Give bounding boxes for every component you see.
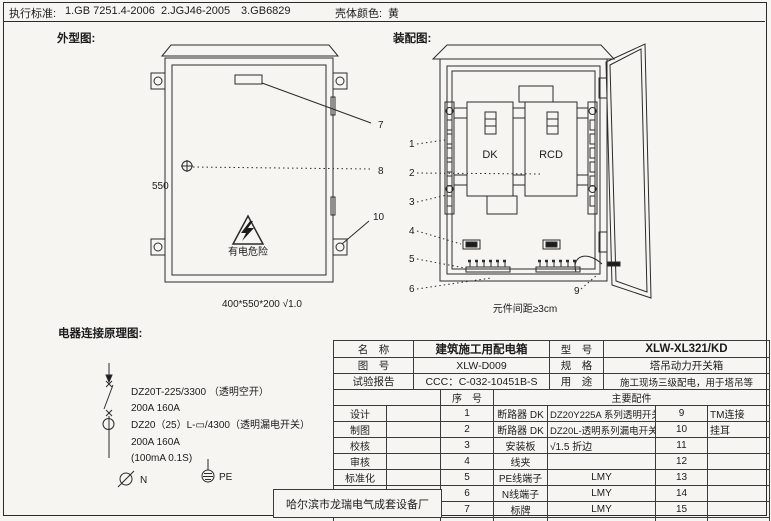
part-name: PE线端子: [494, 470, 548, 486]
schematic-line: DZ20（25）L-▭/4300（透明漏电开关）: [131, 418, 310, 431]
standard-item: 1.GB 7251.4-2006: [65, 5, 155, 17]
backplate-top: [519, 86, 553, 102]
label-window: [235, 75, 262, 84]
schematic-line: 200A 160A: [131, 403, 180, 414]
part-desc: DZ20L-透明系列漏电开关: [548, 422, 656, 438]
part-desc2: 挂耳: [708, 422, 770, 438]
sign-value: [387, 470, 441, 486]
drawing-no-value: XLW-D009: [414, 358, 550, 374]
swing-arc: [575, 256, 602, 272]
din-rail-left: [445, 102, 454, 214]
height-dimension: 550: [152, 181, 169, 192]
callout-5: 5: [409, 254, 415, 265]
sign-label: 标准化: [334, 470, 387, 486]
sign-label: 校核: [334, 438, 387, 454]
leader-1: [417, 140, 445, 144]
shell-color-label: 壳体颜色:: [335, 5, 382, 21]
seq2: 15: [656, 502, 708, 518]
name-label: 名 称: [334, 341, 414, 358]
part-desc: √1.5 折边: [548, 438, 656, 454]
cabinet-roof: [433, 45, 614, 59]
leader-4: [417, 231, 461, 244]
seq2: 10: [656, 422, 708, 438]
callout-8: 8: [378, 166, 384, 177]
standards-label: 执行标准:: [9, 5, 56, 21]
part-desc2: [708, 454, 770, 470]
terminal-strip: [466, 261, 580, 272]
cabinet-body: [440, 59, 607, 281]
rcd-label: RCD: [539, 149, 563, 161]
callout-7: 7: [378, 120, 384, 131]
part-name: N线端子: [494, 486, 548, 502]
leader-10: [342, 221, 369, 244]
drawing-sheet: 执行标准: 1.GB 7251.4-2006 2.JGJ46-2005 3.GB…: [0, 0, 771, 521]
spacing-note: 元件间距≥3cm: [493, 302, 557, 315]
part-desc: DZ20Y225A 系列透明开关: [548, 406, 656, 422]
part-name: 标牌: [494, 502, 548, 518]
arrow-icon: [106, 375, 112, 382]
seq: 6: [441, 486, 494, 502]
model-value: XLW-XL321/KD: [604, 341, 770, 358]
dk-label: DK: [482, 149, 498, 161]
part-desc: [548, 454, 656, 470]
seq: 3: [441, 438, 494, 454]
seq2: 14: [656, 486, 708, 502]
part-desc2: [708, 518, 770, 521]
model-label: 型 号: [550, 341, 604, 358]
table-row: 标准化 5 PE线端子 LMY 13: [334, 470, 770, 486]
sign-label: 设计: [334, 406, 387, 422]
pe-label: PE: [219, 472, 233, 483]
leader-7: [262, 83, 371, 123]
table-row: 设计 1 断路器 DK DZ20Y225A 系列透明开关 9 TM连接: [334, 406, 770, 422]
busbar: [463, 240, 560, 249]
sign-value: [387, 406, 441, 422]
part-desc2: [708, 438, 770, 454]
n-symbol: [118, 471, 134, 487]
standards-bar: 执行标准: 1.GB 7251.4-2006 2.JGJ46-2005 3.GB…: [3, 2, 765, 22]
breaker-blade: [104, 385, 113, 409]
callout-9: 9: [574, 286, 580, 297]
callout-2: 2: [409, 168, 415, 179]
schematic-line: DZ20T-225/3300 （透明空开）: [131, 385, 269, 398]
leader-8: [193, 167, 370, 169]
seq: 8: [441, 518, 494, 521]
leader-3: [417, 195, 447, 202]
n-label: N: [140, 475, 147, 486]
sign-value: [387, 454, 441, 470]
leader-5: [417, 259, 465, 268]
use-value: 施工现场三级配电，用于塔吊等: [604, 374, 770, 390]
product-name: 建筑施工用配电箱: [414, 341, 550, 358]
outline-title: 外型图:: [57, 30, 95, 46]
part-desc2: [708, 486, 770, 502]
cabinet-roof: [162, 45, 338, 56]
sign-label: 审核: [334, 454, 387, 470]
seq2: 16: [656, 518, 708, 521]
callout-4: 4: [409, 226, 415, 237]
outline-drawing: 550 有电危险 400*550*200 √1.0 7 8 10: [140, 40, 390, 321]
schematic-title: 电器连接原理图:: [58, 325, 142, 341]
part-desc2: TM连接: [708, 406, 770, 422]
callout-6: 6: [409, 284, 415, 295]
shell-color-value: 黄: [388, 5, 399, 21]
seq: 7: [441, 502, 494, 518]
assembly-drawing: DK RCD 1 2 3 4 5 6 9 元件间距≥3cm: [395, 40, 771, 321]
factory-name: 哈尔滨市龙瑞电气成套设备厂: [273, 489, 442, 518]
part-desc: LMY: [548, 502, 656, 518]
part-desc: LMY: [548, 486, 656, 502]
seq: 5: [441, 470, 494, 486]
part-name: 安装板: [494, 438, 548, 454]
seq2: 9: [656, 406, 708, 422]
seq: 4: [441, 454, 494, 470]
callout-10: 10: [373, 212, 385, 223]
leader-9: [581, 275, 597, 289]
din-rail-right: [588, 102, 597, 214]
backplate-bottom: [487, 196, 517, 214]
seq: 1: [441, 406, 494, 422]
leader-2: [417, 173, 541, 174]
schematic-drawing: DZ20T-225/3300 （透明空开） 200A 160A DZ20（25）…: [95, 355, 325, 490]
test-report-value: CCC：C-032-10451B-S: [414, 374, 550, 390]
part-desc2: [708, 470, 770, 486]
part-name: 断路器 DK: [494, 422, 548, 438]
door-lock: [181, 160, 193, 172]
door-handle: [608, 262, 620, 266]
pe-earth-symbol: [202, 459, 214, 482]
sign-label: 制图: [334, 422, 387, 438]
leader-6: [417, 278, 491, 289]
parts-header: 主要配件: [494, 390, 770, 406]
breaker-toggle: [485, 112, 558, 134]
drawing-no-label: 图 号: [334, 358, 414, 374]
part-desc2: [708, 502, 770, 518]
test-report-label: 试验报告: [334, 374, 414, 390]
sign-value: [387, 438, 441, 454]
seq: 2: [441, 422, 494, 438]
contact-x: [106, 410, 112, 416]
seq2: 11: [656, 438, 708, 454]
warning-text: 有电危险: [228, 245, 268, 258]
part-name: 断路器 DK: [494, 406, 548, 422]
standard-item: 3.GB6829: [241, 5, 291, 17]
schematic-line: (100mA 0.1S): [131, 453, 192, 464]
part-desc: 防雨: [548, 518, 656, 521]
schematic-line: 200A 160A: [131, 437, 180, 448]
table-row: 校核 3 安装板 √1.5 折边 11: [334, 438, 770, 454]
part-name: 压把锁孔: [494, 518, 548, 521]
sign-value: [387, 422, 441, 438]
part-name: 线夹: [494, 454, 548, 470]
table-row: 审核 4 线夹 12: [334, 454, 770, 470]
use-label: 用 途: [550, 374, 604, 390]
spec-value: 塔吊动力开关箱: [604, 358, 770, 374]
callout-3: 3: [409, 197, 415, 208]
info-table: 名 称 建筑施工用配电箱 型 号 XLW-XL321/KD 图 号 XLW-D0…: [333, 340, 770, 390]
spec-label: 规 格: [550, 358, 604, 374]
seq2: 12: [656, 454, 708, 470]
standard-item: 2.JGJ46-2005: [161, 5, 230, 17]
table-row: 制图 2 断路器 DK DZ20L-透明系列漏电开关 10 挂耳: [334, 422, 770, 438]
mounting-ear: [151, 73, 347, 255]
callout-1: 1: [409, 139, 415, 150]
size-note: 400*550*200 √1.0: [222, 298, 302, 310]
blank-cell: [334, 390, 441, 406]
seq-header: 序 号: [441, 390, 494, 406]
part-desc: LMY: [548, 470, 656, 486]
seq2: 13: [656, 470, 708, 486]
